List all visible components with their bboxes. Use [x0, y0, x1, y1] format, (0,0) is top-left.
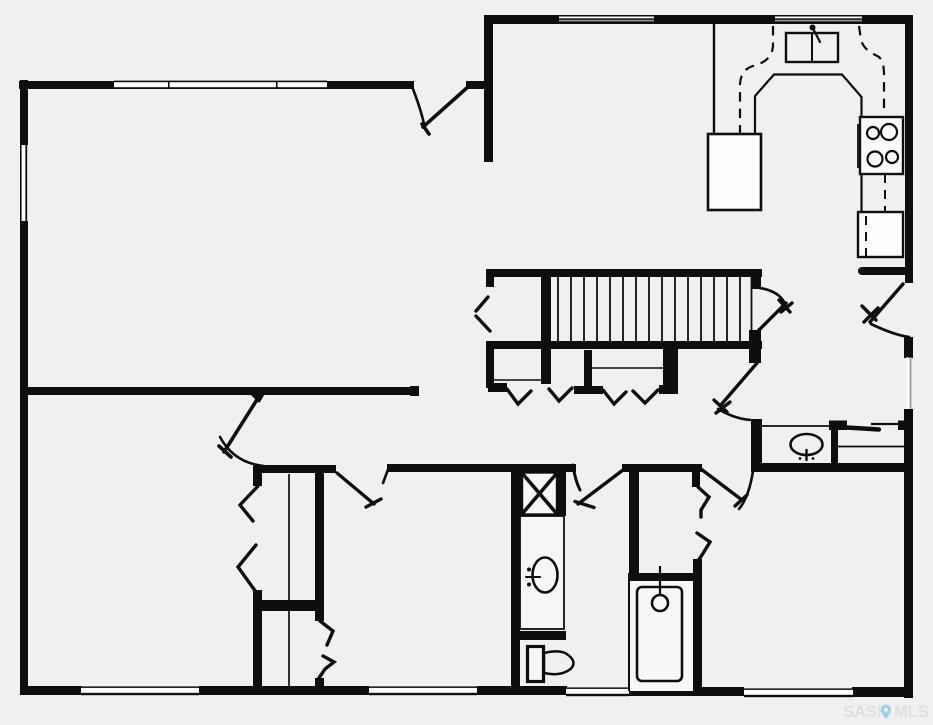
svg-text:MLS: MLS [894, 703, 929, 720]
